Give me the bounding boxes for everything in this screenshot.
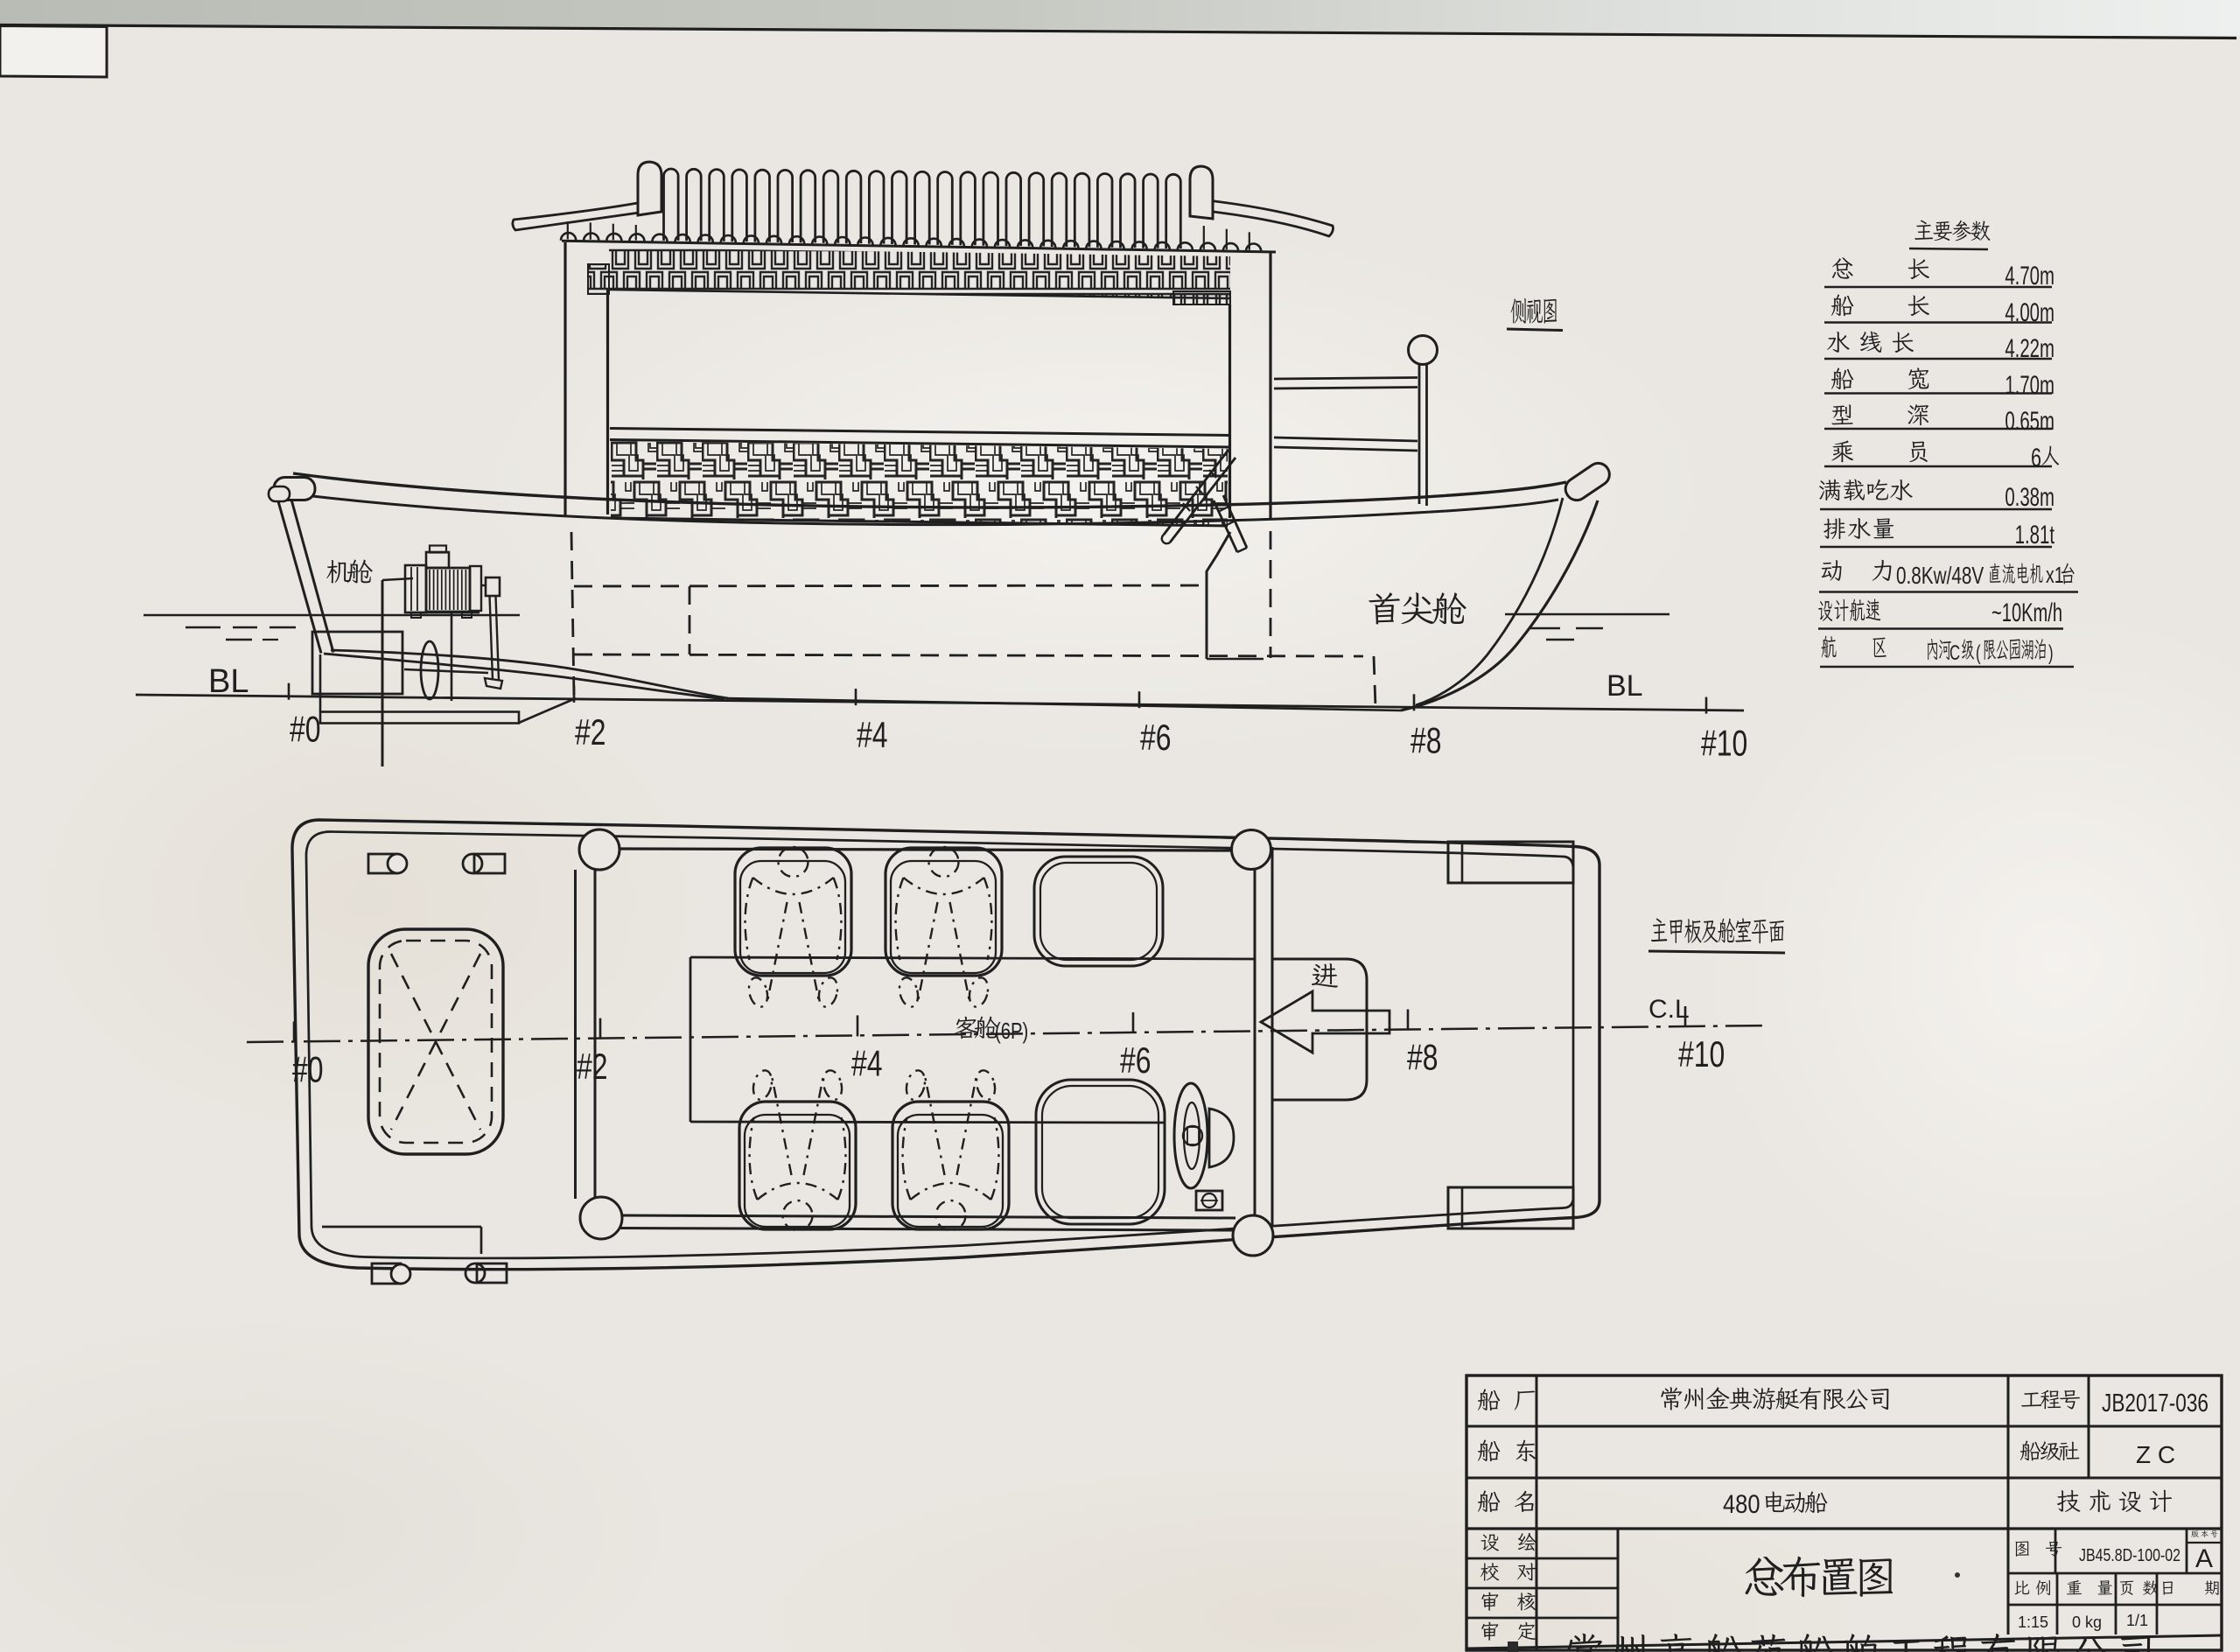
svg-text:(6P): (6P) xyxy=(995,1018,1028,1044)
svg-text:C: C xyxy=(1949,641,1960,665)
svg-text:#10: #10 xyxy=(1701,722,1747,763)
svg-text:#2: #2 xyxy=(577,1046,608,1087)
svg-text:#0: #0 xyxy=(292,1048,324,1089)
svg-text:A: A xyxy=(2195,1544,2213,1573)
svg-text:4.00m: 4.00m xyxy=(2005,298,2054,327)
svg-text:C.L: C.L xyxy=(1648,995,1690,1024)
svg-text:#2: #2 xyxy=(575,711,606,752)
svg-text:(: ( xyxy=(1976,641,1981,665)
svg-text:1.70m: 1.70m xyxy=(2005,371,2054,400)
svg-text:4.70m: 4.70m xyxy=(2005,262,2054,290)
svg-text:#10: #10 xyxy=(1678,1033,1725,1074)
svg-text:BL: BL xyxy=(208,663,248,700)
svg-text:4.22m: 4.22m xyxy=(2005,334,2054,363)
svg-text:6: 6 xyxy=(2031,442,2041,472)
svg-text:JB45.8D-100-02: JB45.8D-100-02 xyxy=(2079,1546,2180,1565)
svg-text:0 kg: 0 kg xyxy=(2072,1613,2102,1631)
svg-text:0.38m: 0.38m xyxy=(2005,483,2054,512)
svg-text:#8: #8 xyxy=(1407,1036,1438,1077)
svg-text:#4: #4 xyxy=(857,714,888,755)
svg-text:JB2017-036: JB2017-036 xyxy=(2102,1388,2208,1417)
svg-text:1/1: 1/1 xyxy=(2126,1612,2148,1629)
svg-text:BL: BL xyxy=(1606,669,1643,703)
svg-text:): ) xyxy=(2048,641,2054,665)
svg-text:Z C: Z C xyxy=(2136,1441,2175,1468)
svg-text:#6: #6 xyxy=(1140,717,1172,758)
svg-text:1.81t: 1.81t xyxy=(2015,521,2054,549)
svg-text:#6: #6 xyxy=(1120,1039,1151,1081)
svg-text:~10Km/h: ~10Km/h xyxy=(1991,598,2062,627)
svg-text:0.65m: 0.65m xyxy=(2005,407,2054,436)
svg-text:#0: #0 xyxy=(290,708,321,749)
svg-text:0.8Kw/48V: 0.8Kw/48V xyxy=(1896,563,1984,590)
svg-text:480: 480 xyxy=(1723,1489,1760,1518)
svg-text:#8: #8 xyxy=(1410,719,1442,760)
svg-text:x1: x1 xyxy=(2046,562,2064,587)
svg-text:#4: #4 xyxy=(851,1042,883,1083)
svg-text:1:15: 1:15 xyxy=(2018,1613,2048,1631)
